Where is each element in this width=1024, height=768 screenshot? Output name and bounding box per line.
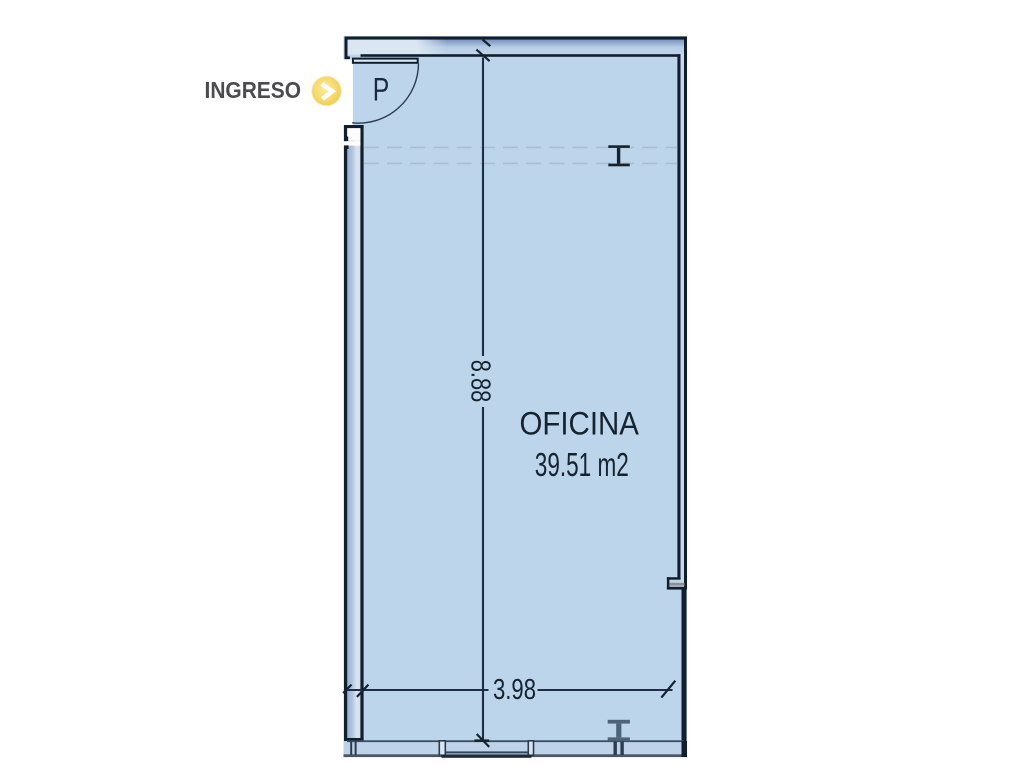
svg-text:INGRESO: INGRESO [205, 77, 302, 103]
svg-text:P: P [373, 71, 390, 107]
svg-text:8.88: 8.88 [466, 360, 497, 403]
svg-text:OFICINA: OFICINA [519, 405, 639, 441]
svg-text:39.51 m2: 39.51 m2 [535, 446, 629, 483]
svg-text:3.98: 3.98 [493, 674, 536, 706]
